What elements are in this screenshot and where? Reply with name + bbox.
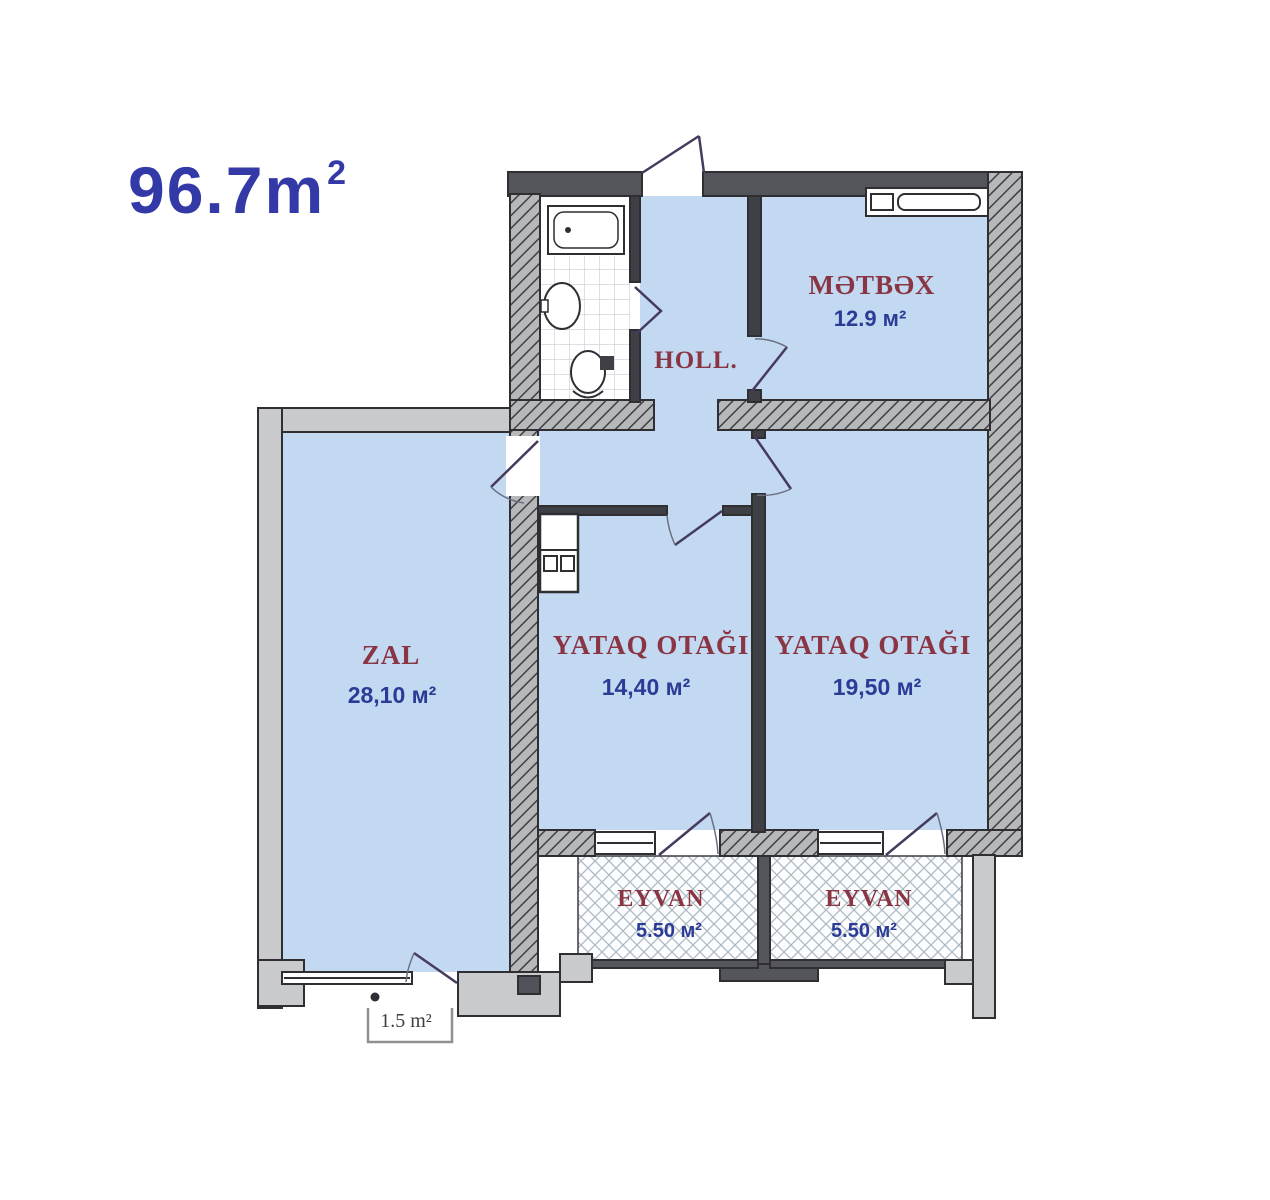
balcony2-right-wall xyxy=(973,855,995,1018)
bedroom1-cabinet xyxy=(540,514,578,592)
total-area-sup: 2 xyxy=(327,154,348,192)
room-label-eyvan-2: EYVAN xyxy=(825,886,912,913)
balcony2-bottom-wall xyxy=(770,960,945,968)
total-area-value: 96.7 xyxy=(128,153,264,227)
total-area-unit: m xyxy=(264,153,325,227)
room-label-yataq-otagi-2: YATAQ OTAĞI xyxy=(775,630,972,661)
mid-wall-right xyxy=(718,400,990,430)
hall-kitchen-wall-stub xyxy=(748,390,761,402)
kitchen-window-sash-small xyxy=(871,194,893,210)
bathtub-drain xyxy=(565,227,571,233)
living-room-top-wall xyxy=(258,408,510,432)
hall-kitchen-wall xyxy=(748,196,761,336)
bedroom-divider-wall xyxy=(752,494,765,832)
bedroom1-bottom-wall-a xyxy=(538,830,595,856)
top-wall-left xyxy=(508,172,642,196)
bottom-block-core xyxy=(518,976,540,994)
bathroom-right-wall-b xyxy=(630,330,640,402)
right-outer-wall xyxy=(988,172,1022,832)
area-label-kicik-balkon: 1.5 m² xyxy=(380,1010,432,1033)
hall-passage-floor xyxy=(654,400,718,434)
balcony1-left-block xyxy=(560,954,592,982)
toilet-bowl xyxy=(571,351,605,393)
bedrooms-bottom-wall-center xyxy=(720,830,818,856)
bedroom1-top-wall-b xyxy=(723,506,752,515)
balcony1-bottom-wall xyxy=(578,960,758,968)
living-room-left-wall xyxy=(258,408,282,1008)
area-label-yataq-otagi-2: 19,50 м² xyxy=(833,674,922,701)
cabinet-cell-2 xyxy=(561,556,574,571)
room-label-eyvan-1: EYVAN xyxy=(617,886,704,913)
area-label-eyvan-1: 5.50 м² xyxy=(636,920,702,943)
bathroom-left-wall xyxy=(510,194,540,402)
area-label-eyvan-2: 5.50 м² xyxy=(831,920,897,943)
living-room-bottom-block xyxy=(458,972,560,1016)
bedroom2-bottom-wall-b xyxy=(947,830,1022,856)
bathroom-right-wall-a xyxy=(630,196,640,282)
sink-tap xyxy=(541,300,548,312)
total-area-title: 96.7m2 xyxy=(128,152,346,228)
balcony2-right-notch xyxy=(945,960,973,984)
sink xyxy=(544,283,580,329)
kitchen-window-sash-long xyxy=(898,194,980,210)
entrance-door-chord xyxy=(699,136,704,173)
bedroom-divider-stub xyxy=(752,430,765,438)
bathtub-inner xyxy=(554,212,618,248)
room-label-zal: ZAL xyxy=(362,640,421,671)
threshold-dot xyxy=(371,993,380,1002)
mid-wall-left xyxy=(510,400,654,430)
living-room-right-wall xyxy=(510,430,538,978)
room-label-metbex: MƏTBƏX xyxy=(809,270,936,301)
entrance-door-leaf xyxy=(642,136,699,173)
toilet-tank xyxy=(600,356,614,370)
cabinet-cell-1 xyxy=(544,556,557,571)
cabinet-body xyxy=(540,514,578,592)
floor-plan-page: 96.7m2 MƏTBƏX 12.9 м² HOLL. ZAL 28,10 м²… xyxy=(0,0,1270,1200)
balcony-center-pillar xyxy=(758,856,770,968)
room-label-yataq-otagi-1: YATAQ OTAĞI xyxy=(553,630,750,661)
area-label-yataq-otagi-1: 14,40 м² xyxy=(602,674,691,701)
room-label-holl: HOLL. xyxy=(654,347,738,375)
area-label-zal: 28,10 м² xyxy=(348,682,437,709)
area-label-metbex: 12.9 м² xyxy=(834,306,907,332)
